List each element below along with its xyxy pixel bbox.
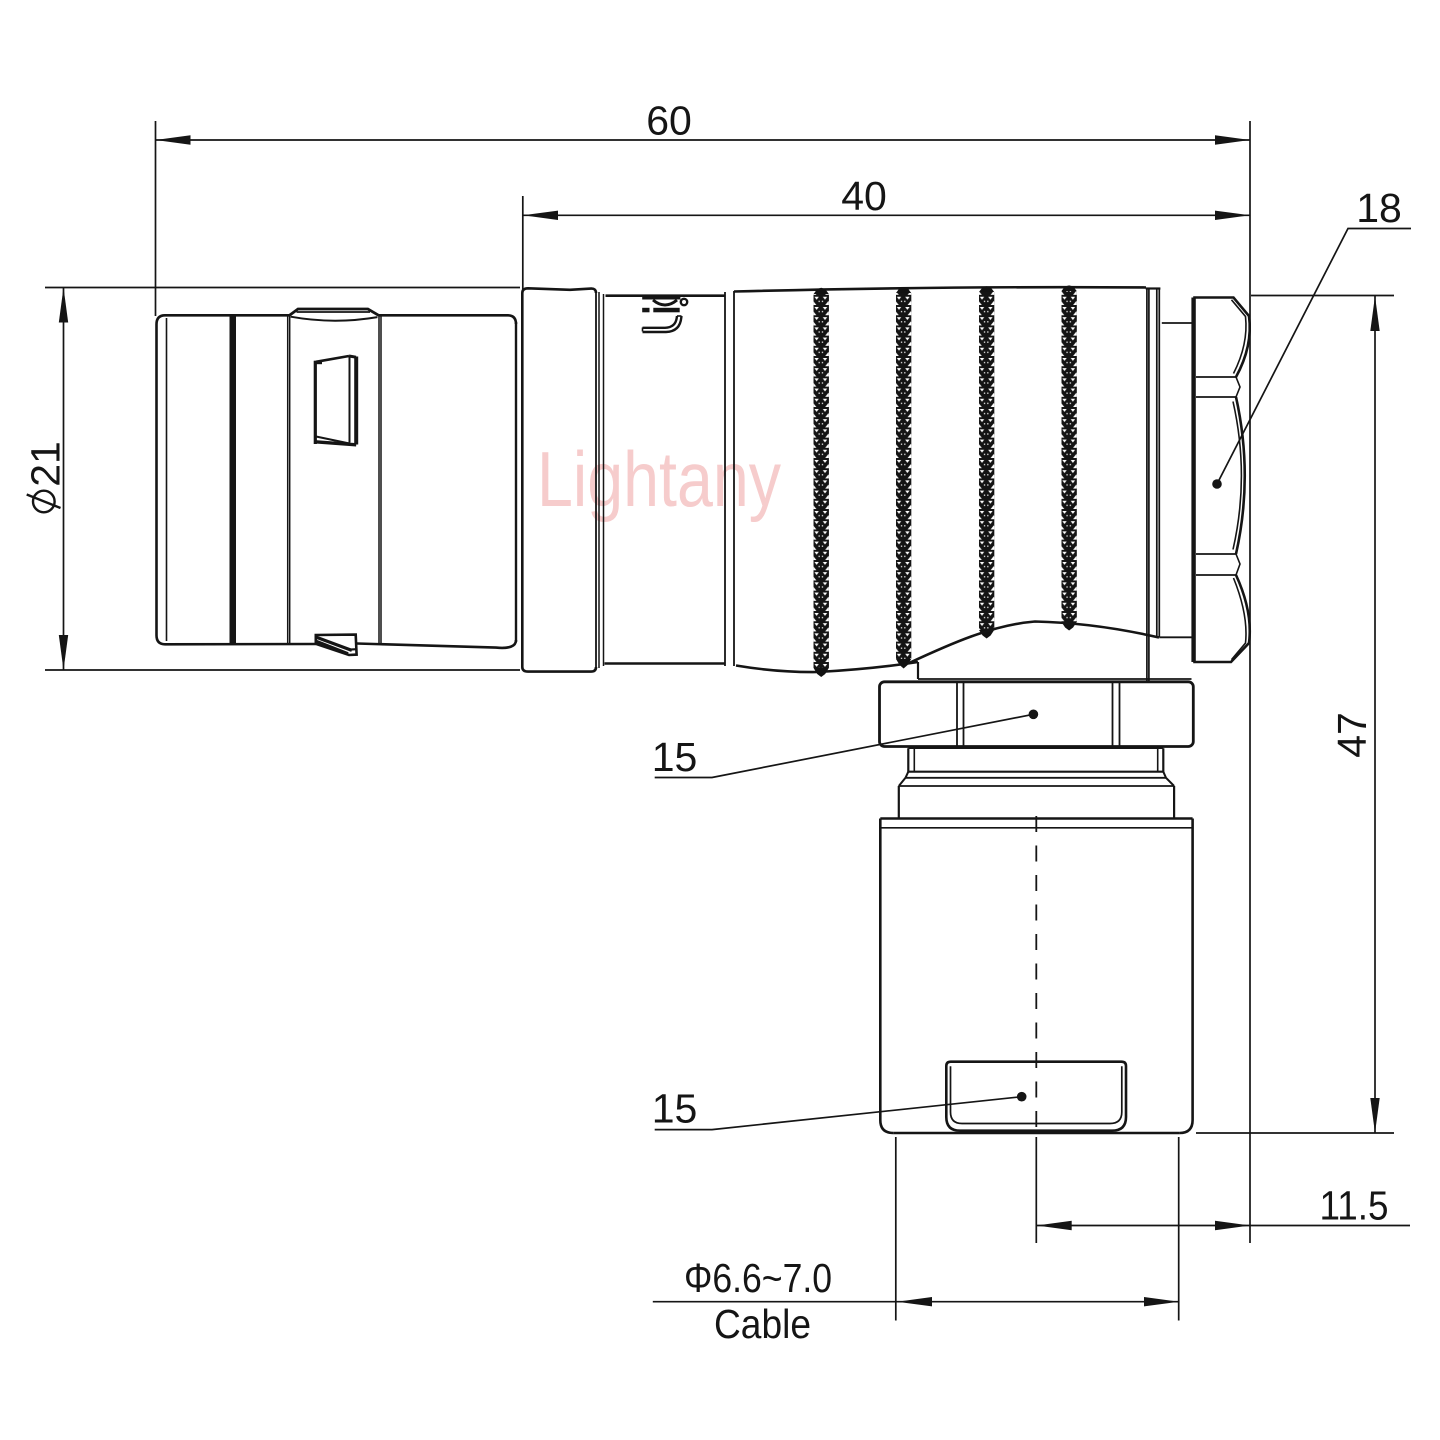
svg-text:40: 40 xyxy=(841,173,887,219)
svg-text:18: 18 xyxy=(1356,185,1402,231)
svg-text:Φ6.6~7.0: Φ6.6~7.0 xyxy=(684,1255,832,1301)
svg-text:Lightany: Lightany xyxy=(537,435,781,523)
svg-text:15: 15 xyxy=(652,1086,698,1132)
svg-text:Cable: Cable xyxy=(714,1301,811,1347)
svg-text:60: 60 xyxy=(646,98,692,144)
svg-text:21: 21 xyxy=(23,441,69,487)
svg-text:47: 47 xyxy=(1329,712,1375,758)
svg-text:11.5: 11.5 xyxy=(1320,1183,1389,1229)
svg-text:15: 15 xyxy=(652,734,698,780)
